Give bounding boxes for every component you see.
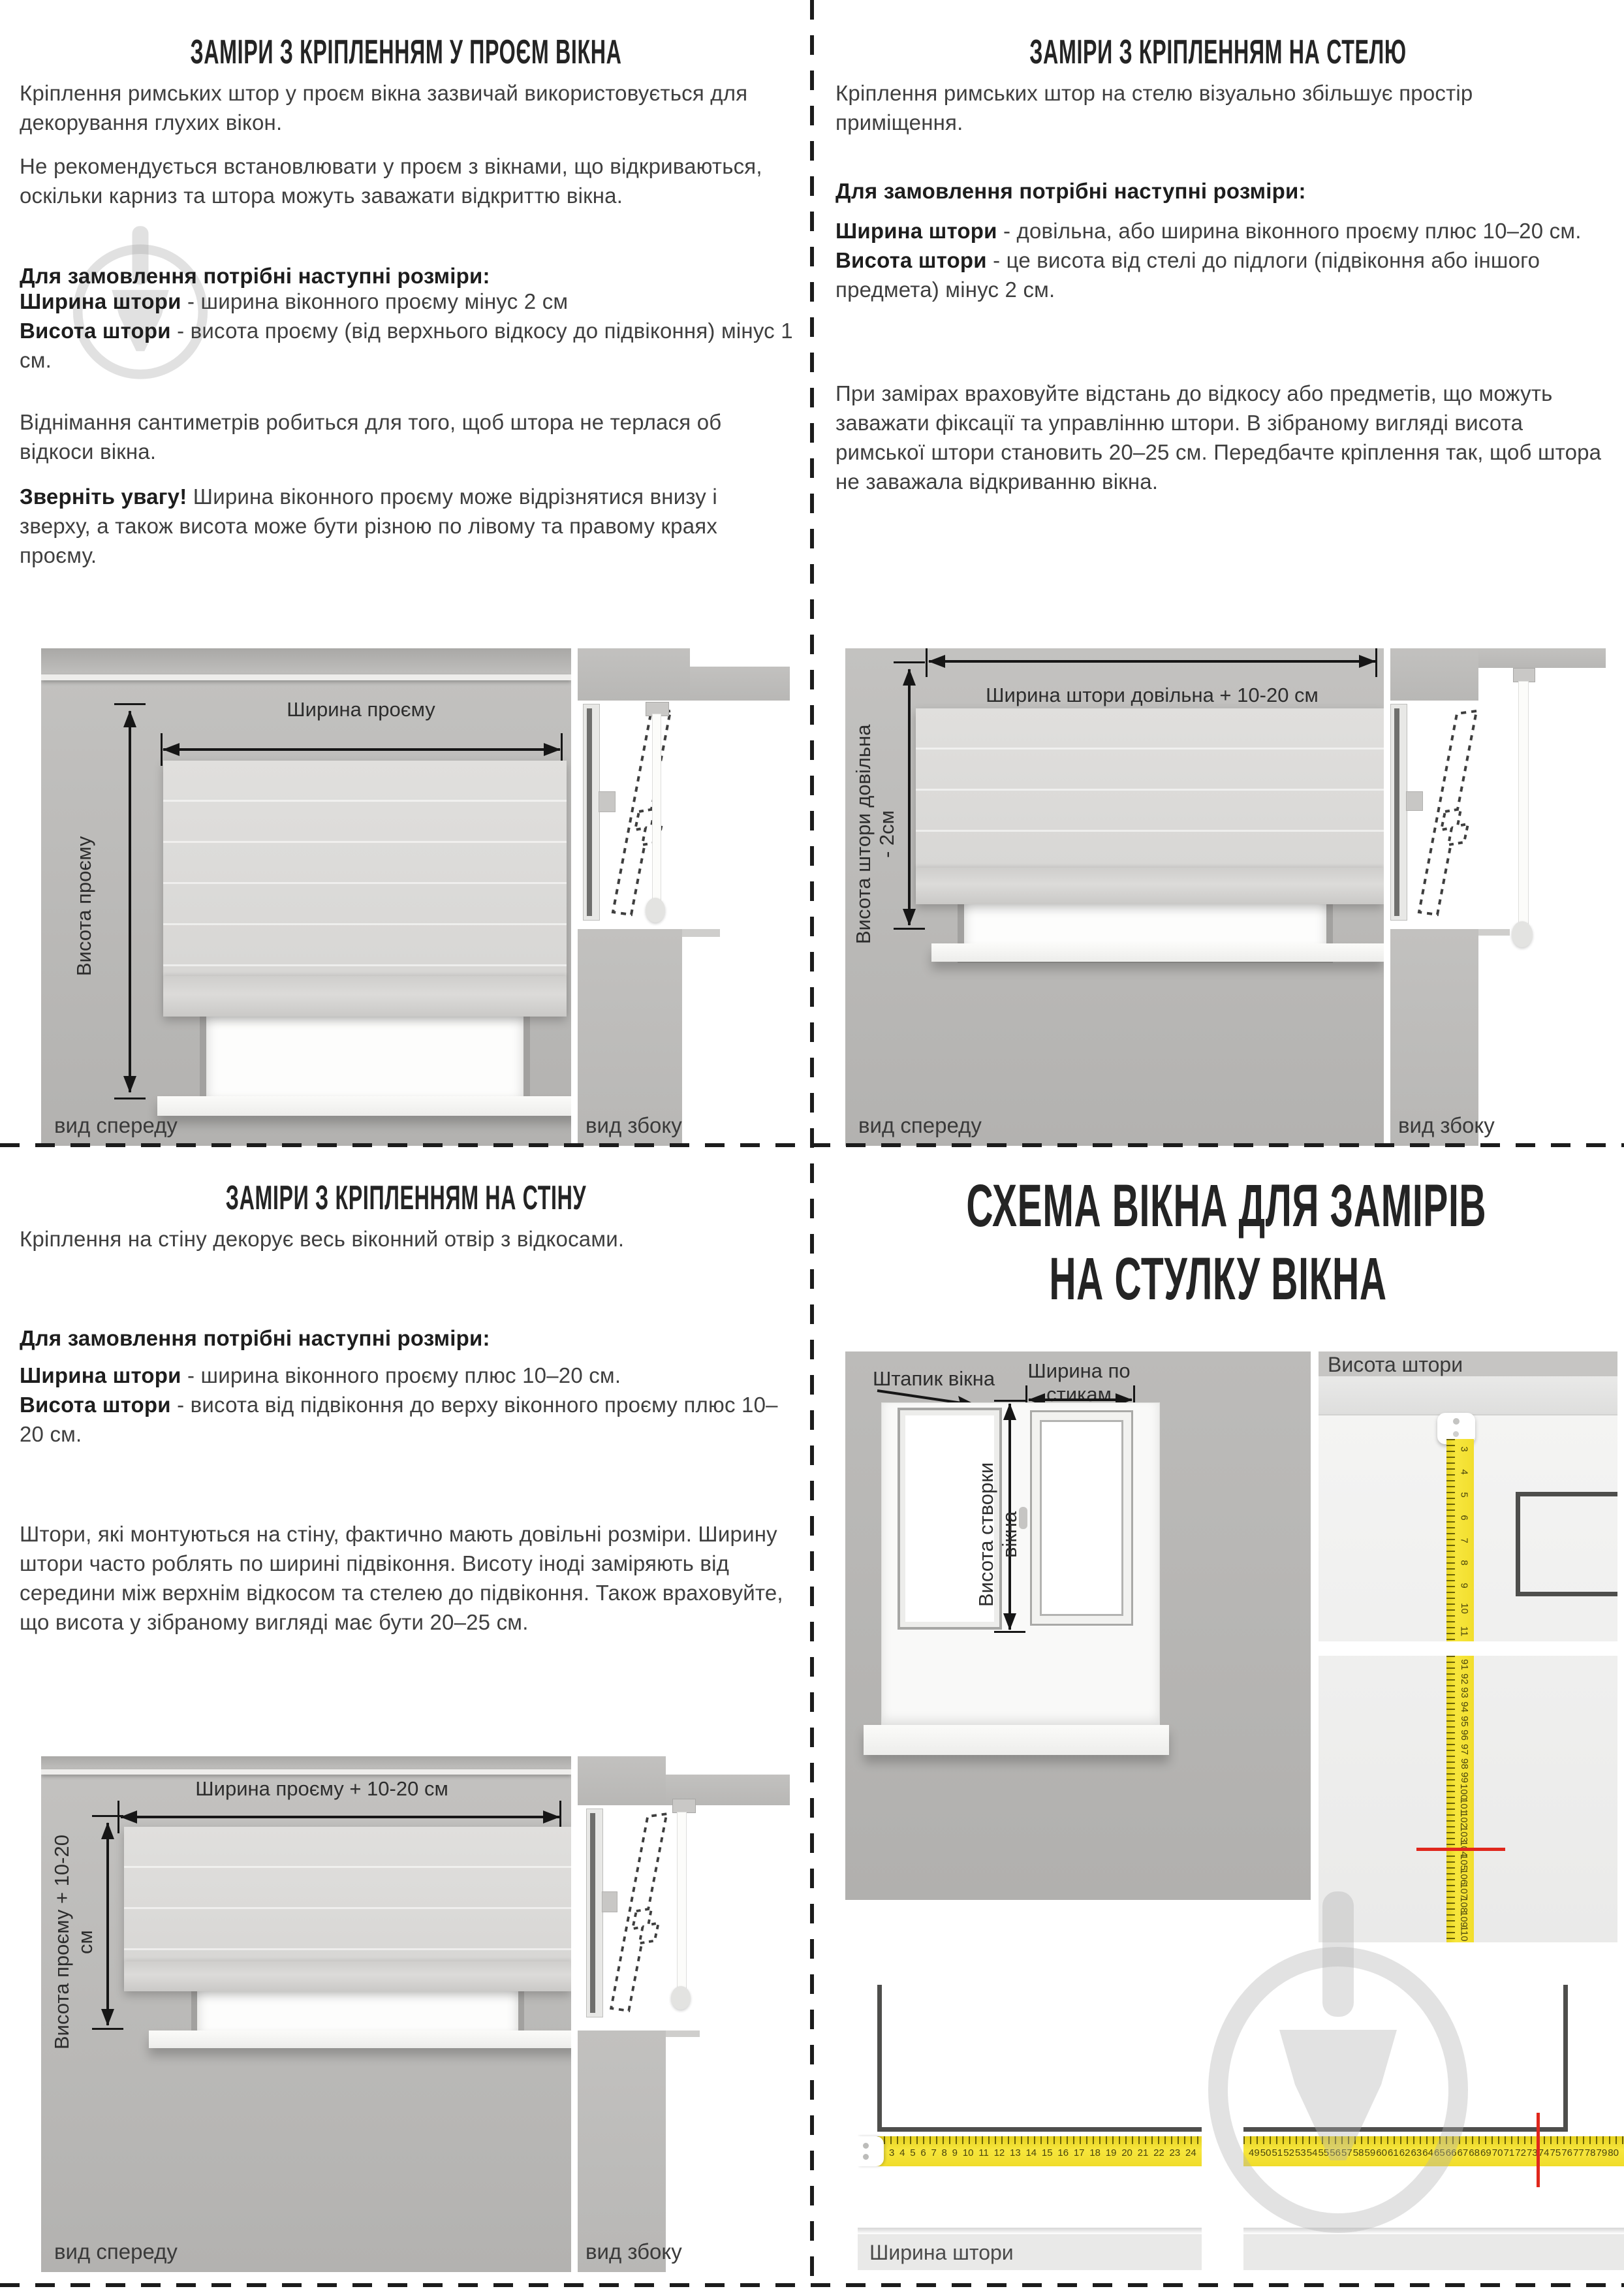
wall-block [1390,648,1478,701]
term: Ширина штори [20,289,181,313]
blind-profile [1518,681,1529,925]
paragraph: Віднімання сантиметрів робиться для того… [20,408,793,467]
section-title: ЗАМІРИ З КРІПЛЕННЯМ НА СТІНУ [154,1178,657,1218]
term: Висота штори [835,248,987,272]
front-view-diagram: Ширина проєму + 10-20 см Висота проєму +… [41,1756,571,2272]
term: Висота штори [20,319,171,343]
height-dimension-label: Висота проєму [72,798,96,1014]
size-definitions: Ширина штори - довільна, або ширина віко… [835,217,1606,305]
section-title: ЗАМІРИ З КРІПЛЕННЯМ НА СТЕЛЮ [966,33,1469,72]
roman-blind [124,1827,571,1991]
height-dimension-label: Висота штори довільна - 2см [852,720,899,949]
tape-start-tab [858,2136,884,2166]
red-measure-mark [1537,2113,1540,2187]
width-dimension-arrow [929,660,1375,663]
definition: - довільна, або ширина віконного проєму … [997,219,1582,243]
section-title-line2: НА СТУЛКУ ВІКНА [966,1245,1469,1314]
curtain-rod [41,674,571,680]
bottom-cut-line [0,2283,1624,2287]
chain-weight [671,1986,691,2010]
height-dimension-arrow [106,1823,109,2025]
frame-bead-line [1516,1592,1617,1596]
ceiling-strip [1319,1376,1617,1415]
dimension-tick [926,648,928,677]
horizontal-cut-line [0,1143,1624,1147]
frame-bead-line [877,1985,882,2132]
sill-ledge [1478,929,1510,936]
bracket-screw [1453,1418,1460,1425]
window-sill [864,1725,1169,1755]
front-view-diagram: Ширина проєму Висота проєму вид спереду [41,648,571,1146]
order-lead: Для замовлення потрібні наступні розміри… [20,1324,793,1353]
section-sash-scheme: СХЕМА ВІКНА ДЛЯ ЗАМІРІВ НА СТУЛКУ ВІКНА … [812,1146,1624,2291]
shadow-line [858,2228,1202,2234]
section-title: ЗАМІРИ З КРІПЛЕННЯМ У ПРОЄМ ВІКНА [154,33,657,72]
tape-numbers: 3456789101112131415161718192021222324 [889,2148,1196,2158]
sill-ledge [682,929,720,937]
tape-numbers: 34567891011 [1457,1444,1471,1636]
term: Ширина штори [835,219,997,243]
sill-ledge [666,2030,700,2037]
front-view-caption: вид спереду [54,1113,178,1138]
sash-height-label: Висота створки вікна [975,1436,1022,1632]
chain-weight [646,898,665,923]
width-dimension-arrow [163,748,560,751]
window-sill [149,2030,571,2048]
blind-fold [124,1961,571,1991]
tape-ticks [858,2136,1202,2144]
height-definition: Висота штори - висота від підвіконня до … [20,1391,793,1449]
side-view-diagram: вид збоку [578,1756,790,2272]
sash-measure-diagram: Штапик вікна Ширина по стикам штапика Ви… [845,1351,1311,1900]
width-definition: Ширина штори - довільна, або ширина віко… [835,217,1606,246]
section-wall-mount: ЗАМІРИ З КРІПЛЕННЯМ НА СТІНУ Кріплення н… [0,1146,812,2291]
side-view-diagram: вид збоку [578,648,790,1146]
width-dimension-arrow [121,1816,559,1818]
side-view-caption: вид збоку [586,1113,682,1138]
height-dimension-arrow [908,669,911,925]
wall-block [578,648,690,701]
order-lead: Для замовлення потрібні наступні розміри… [835,177,1606,206]
measuring-tape-vertical-upper: 34567891011 [1446,1439,1474,1641]
section-title-line1: СХЕМА ВІКНА ДЛЯ ЗАМІРІВ [966,1172,1469,1240]
window [200,1009,530,1109]
blind-headrail [672,1799,696,1813]
bead-width-arrow [1029,1398,1132,1401]
dimension-tick [92,1815,123,1817]
paragraph: Не рекомендується встановлювати у проєм … [20,152,793,211]
tape-ticks [1446,1439,1455,1641]
glass-line [587,708,592,916]
red-measure-mark [1416,1848,1505,1851]
dimension-tick [114,703,146,705]
paragraph: Кріплення римських штор у проєм вікна за… [20,79,793,138]
note-term: Зверніть увагу! [20,484,187,509]
paragraph: Кріплення на стіну декорує весь віконний… [20,1225,793,1254]
curtain-width-caption: Ширина штори [869,2241,1014,2265]
floor [1243,2234,1624,2270]
curtain-height-caption: Висота штори [1328,1353,1463,1377]
width-definition: Ширина штори - ширина віконного проєму м… [20,287,793,317]
open-sash-dashed-outline [597,706,695,921]
frame-bead-line [1516,1492,1520,1596]
size-definitions: Ширина штори - ширина віконного проєму м… [20,287,793,375]
roman-blind [916,708,1384,904]
height-definition: Висота штори - висота проєму (від верхнь… [20,317,793,375]
roman-blind [163,761,567,1017]
dimension-tick [114,1098,146,1099]
front-view-caption: вид спереду [858,1113,982,1138]
window-sill [157,1096,571,1116]
brand-trowel-watermark-icon [1201,1884,1475,2239]
blind-fold [163,976,567,1017]
frame-bead-line [1516,1492,1617,1496]
front-view-diagram: Ширина штори довільна + 10-20 см Висота … [845,648,1384,1146]
bracket-screw [1453,1431,1459,1437]
frame-bead-line [877,2127,1202,2132]
ceiling-block [1478,648,1606,668]
right-sash [1030,1410,1133,1626]
paragraph: При замірах враховуйте відстань до відко… [835,379,1606,497]
curtain-height-photo: Висота штори 34567891011 919293949596979… [1319,1351,1617,1942]
frame-bead-line [1563,1985,1568,2132]
dimension-tick [894,661,925,663]
wall-block [578,1756,666,1805]
definition: - ширина віконного проєму плюс 10–20 см. [181,1363,621,1387]
open-sash-dashed-outline [1403,706,1501,921]
blind-profile [652,714,661,903]
side-view-diagram: вид збоку [1390,648,1606,1146]
note-paragraph: Зверніть увагу! Ширина віконного проєму … [20,482,793,571]
blind-headrail [1513,668,1535,682]
width-dimension-label: Ширина проєму [165,698,557,721]
cornice [41,648,571,674]
ceiling-block [690,667,790,701]
side-view-caption: вид збоку [1398,1113,1495,1138]
width-definition: Ширина штори - ширина віконного проєму п… [20,1361,793,1391]
dimension-tick [117,1801,119,1833]
blind-fold [916,868,1384,904]
section-ceiling-mount: ЗАМІРИ З КРІПЛЕННЯМ НА СТЕЛЮ Кріплення р… [812,0,1624,1145]
right-sash-glass [1040,1420,1123,1616]
section-opening-mount: ЗАМІРИ З КРІПЛЕННЯМ У ПРОЄМ ВІКНА Кріпле… [0,0,812,1145]
glass-line [1394,708,1399,916]
width-dimension-label: Ширина проєму + 10-20 см [126,1777,518,1801]
window-sill [931,943,1384,962]
chain-weight [1512,921,1533,947]
front-view-caption: вид спереду [54,2239,178,2264]
term: Ширина штори [20,1363,181,1387]
leaflet-page: ЗАМІРИ З КРІПЛЕННЯМ У ПРОЄМ ВІКНА Кріпле… [0,0,1624,2291]
size-definitions: Ширина штори - ширина віконного проєму п… [20,1361,793,1449]
paragraph: Штори, які монтуються на стіну, фактично… [20,1520,793,1637]
caption-band: Висота штори [1319,1351,1617,1376]
paragraph: Кріплення римських штор на стелю візуаль… [835,79,1606,138]
dimension-tick [994,1400,1025,1402]
curtain-width-photo-left: 3456789101112131415161718192021222324 Ши… [858,1985,1202,2270]
photo-split-gap [1319,1641,1617,1656]
height-dimension-arrow [129,711,131,1092]
wall-block-bottom [578,2030,666,2272]
curtain-rod [41,1769,571,1775]
width-dimension-label: Ширина штори довільна + 10-20 см [937,684,1367,707]
term: Висота штори [20,1393,171,1417]
height-dimension-label: Висота проєму + 10-20 см [50,1835,97,2050]
height-definition: Висота штори - це висота від стелі до пі… [835,246,1606,305]
cornice [41,1756,571,1769]
definition: - ширина віконного проєму мінус 2 см [181,289,569,313]
measuring-tape-horizontal-left: 3456789101112131415161718192021222324 [858,2136,1202,2166]
side-view-caption: вид збоку [586,2239,682,2264]
blind-profile [677,1812,687,1991]
glass-line [590,1813,595,2013]
